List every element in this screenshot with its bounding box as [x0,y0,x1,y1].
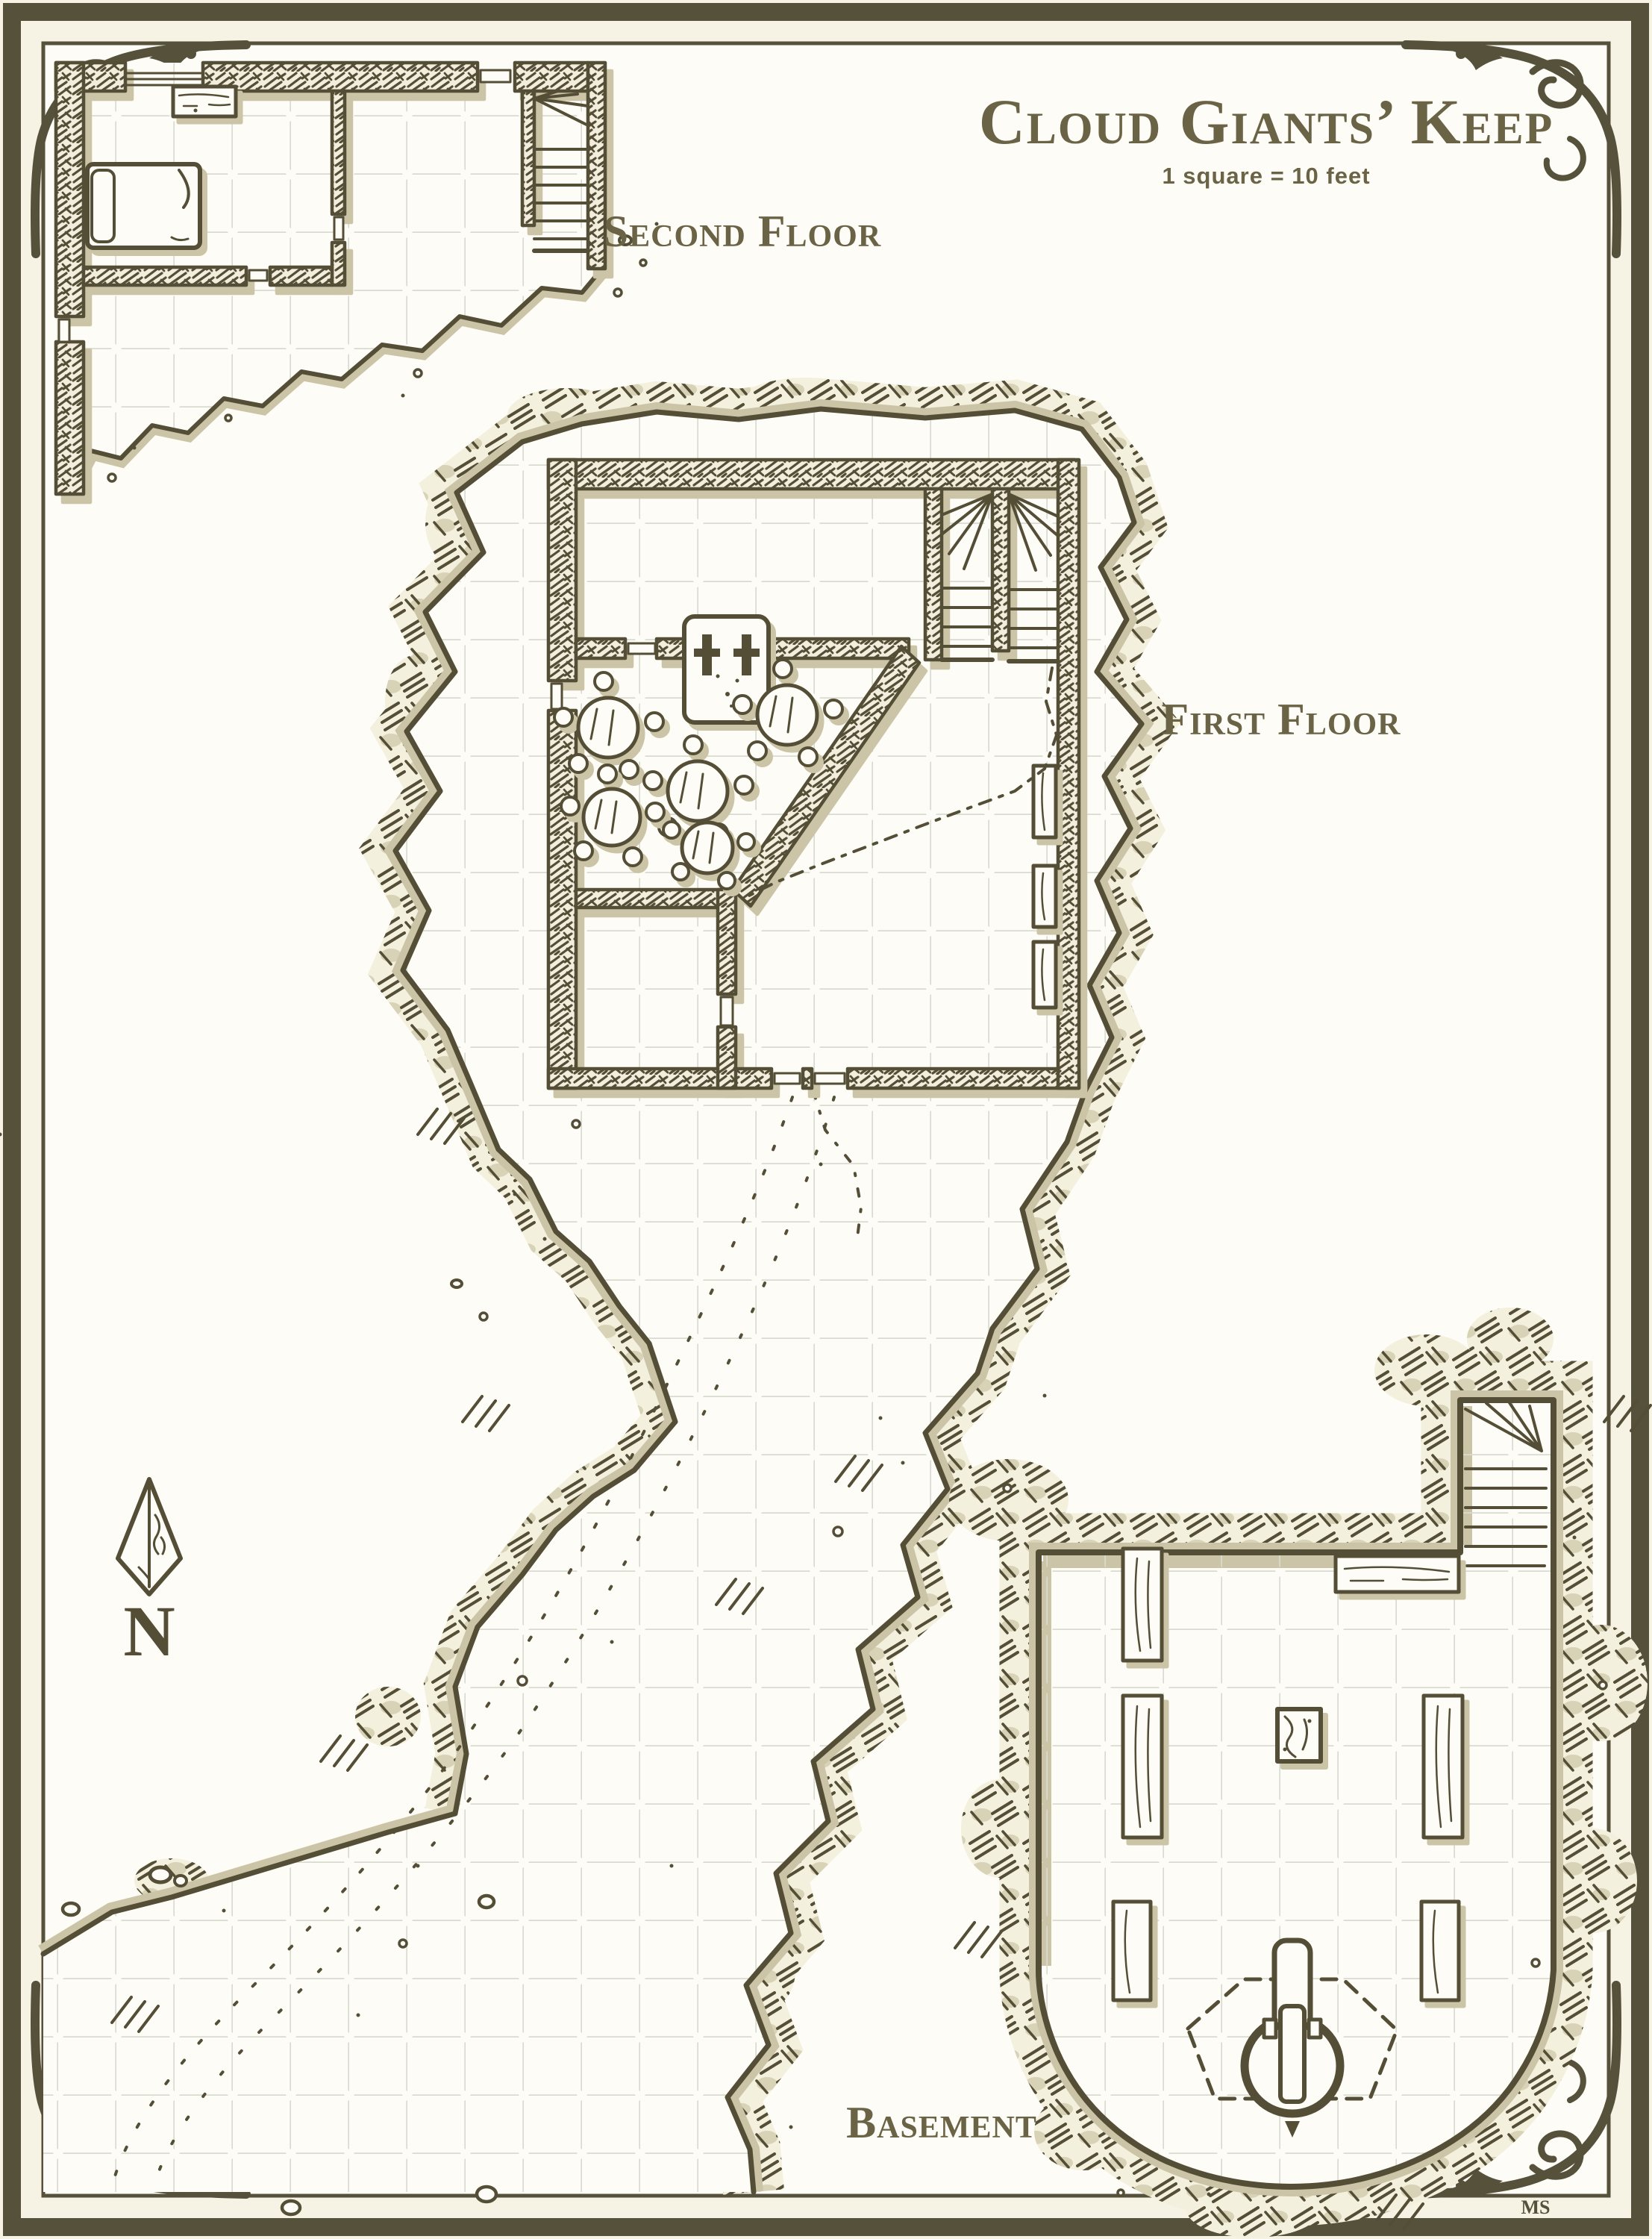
fireplace-icon [684,616,769,722]
label-basement: Basement [846,2098,1037,2147]
label-second-floor: Second Floor [604,207,881,256]
long-table-icon [1123,1549,1162,1661]
stairwell-west-wall [925,489,942,660]
north-wall-c [515,63,588,91]
compass-north-letter: N [123,1591,175,1671]
hall-wall-b [657,639,684,658]
storeroom-east-wall-upper [718,890,736,994]
label-first-floor: First Floor [1161,695,1401,744]
bed-icon [87,164,200,248]
west-wall-lower [56,342,84,494]
north-door [481,70,510,82]
east-wall [1058,460,1079,1088]
page-title: Cloud Giants’ Keep [979,86,1554,157]
storeroom-east-wall-lower [718,1027,736,1088]
map-canvas: MS [0,0,1652,2239]
east-wall [588,63,605,269]
west-door [551,684,562,709]
scale-note: 1 square = 10 feet [1162,163,1370,189]
bedroom-east-wall-lower [332,243,345,285]
long-table-icon [1123,1696,1162,1837]
map-page: MS [0,0,1652,2239]
hall-wall-a [576,639,625,658]
storage-crates [1033,766,1056,1008]
long-table-icon [1336,1556,1459,1592]
long-table-icon [1113,1902,1151,2000]
storeroom-door [721,997,733,1025]
south-door [249,270,267,281]
south-wall-east [848,1069,1079,1088]
artist-signature: MS [1521,2196,1551,2218]
hall-wall-c [769,639,909,658]
bedroom-south-wall-b [270,267,332,285]
desk-icon [173,87,236,116]
north-wall-b [203,63,478,91]
long-table-icon [1421,1902,1459,2000]
south-wall-west [548,1069,772,1088]
west-wall-upper [548,460,576,681]
west-wall-upper [56,63,84,316]
long-table-icon [1424,1696,1462,1837]
bedroom-door [334,217,343,240]
storeroom-north-wall [576,890,728,908]
bedroom-south-wall-a [84,267,246,285]
south-door-post [803,1069,812,1088]
stairwell-divider-wall [992,489,1009,651]
north-wall [548,460,1074,489]
west-door [59,319,69,342]
bedroom-east-wall-upper [332,91,345,214]
stairwell-wall [522,91,534,225]
south-door-left [775,1073,800,1084]
trapdoor-icon [1277,1709,1321,1761]
hall-door [628,643,655,654]
south-door-right [815,1073,845,1084]
